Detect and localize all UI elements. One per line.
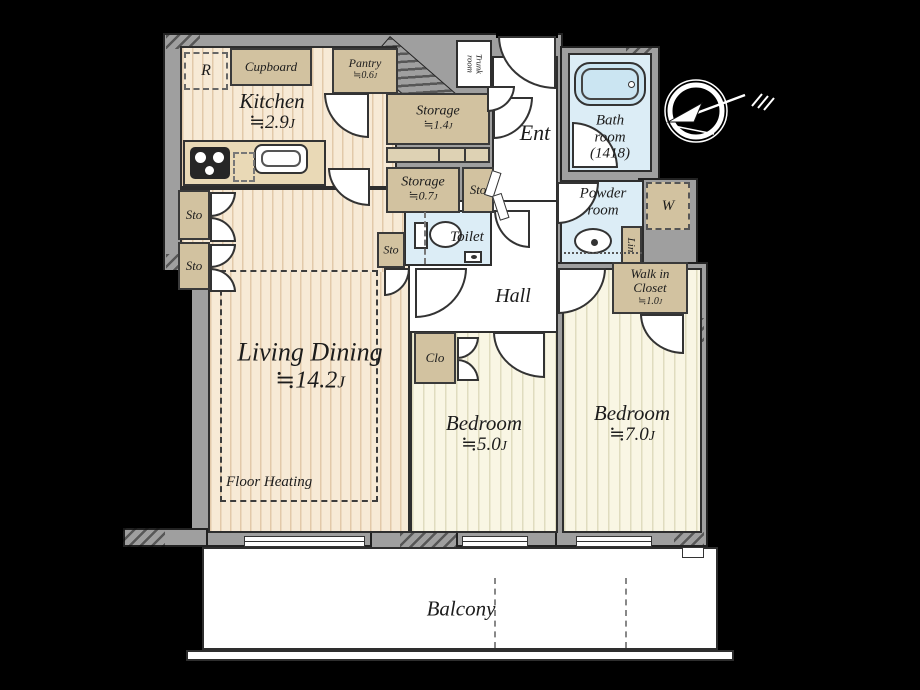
shelf-divider xyxy=(438,149,440,161)
sto-mid-label: Sto xyxy=(470,183,487,197)
pantry-size: ≒0.6J xyxy=(349,70,382,81)
bedroom7-window xyxy=(576,536,652,547)
counter-dashed-module xyxy=(233,152,255,182)
powder-line1: Powder xyxy=(580,186,627,203)
storage07-name: Storage xyxy=(401,175,445,190)
storage07-size-unit: J xyxy=(434,192,438,202)
storage14-label: Storage ≒1.4J xyxy=(416,104,460,133)
bathroom-label: Bath room (1418) xyxy=(590,112,630,162)
powder-room-label: Powder room xyxy=(580,186,627,219)
bedroom5-label: Bedroom ≒5.0J xyxy=(446,412,522,456)
bedroom7-size: ≒7.0J xyxy=(594,425,670,446)
storage14-name: Storage xyxy=(416,104,460,119)
powder-line2: room xyxy=(580,202,627,219)
burner xyxy=(205,166,214,175)
bedroom5-size: ≒5.0J xyxy=(446,435,522,456)
living-window xyxy=(244,536,365,547)
toilet-control xyxy=(464,251,482,263)
kitchen-size-unit: J xyxy=(289,116,295,131)
bath-line2: room xyxy=(590,129,630,146)
walkin-closet-label: Walk in Closet ≒1.0J xyxy=(631,267,670,307)
exterior-notch xyxy=(140,270,192,532)
floor-plan: Kitchen ≒2.9J Living Dining ≒14.2J Bedro… xyxy=(0,0,920,690)
kitchen-size-value: ≒2.9 xyxy=(249,112,289,133)
pantry-label: Pantry ≒0.6J xyxy=(349,57,382,81)
trunk-room-label: Trunk room xyxy=(465,54,484,74)
living-name: Living Dining xyxy=(237,339,382,368)
living-size-value: ≒14.2 xyxy=(275,367,337,393)
bedroom7-size-value: ≒7.0 xyxy=(609,424,649,445)
sto-left2-label: Sto xyxy=(186,259,203,273)
bedroom7-size-unit: J xyxy=(649,428,655,443)
clo-label: Clo xyxy=(426,351,445,365)
sink-basin xyxy=(261,150,301,167)
kitchen-sink-icon xyxy=(254,144,308,174)
kitchen-name: Kitchen xyxy=(239,90,304,113)
bath-line3: (1418) xyxy=(590,145,630,162)
walkin-line2: Closet xyxy=(631,282,670,296)
storage14-size-value: ≒1.4 xyxy=(424,118,449,132)
fridge-label: R xyxy=(201,62,211,80)
storage14-size: ≒1.4J xyxy=(416,119,460,132)
walkin-size-value: ≒1.0 xyxy=(638,296,659,307)
storage07-label: Storage ≒0.7J xyxy=(401,175,445,204)
powder-sink-icon xyxy=(574,228,612,254)
burner xyxy=(195,152,206,163)
storage14-shelf xyxy=(386,147,490,163)
balcony-label: Balcony xyxy=(427,597,496,620)
linen-label: Lin xyxy=(625,238,637,253)
hall-label: Hall xyxy=(495,285,531,307)
compass-north-arrow-icon xyxy=(660,74,780,146)
walkin-size: ≒1.0J xyxy=(631,296,670,307)
balcony-corner-notch xyxy=(682,547,704,558)
toilet-dashed-line xyxy=(424,212,426,264)
bedroom5-size-unit: J xyxy=(501,438,507,453)
bedroom5-name: Bedroom xyxy=(446,412,522,435)
bedroom5-size-value: ≒5.0 xyxy=(461,434,501,455)
balcony-rail xyxy=(186,650,734,661)
bath-line1: Bath xyxy=(590,112,630,129)
control-dot xyxy=(471,255,477,259)
living-size: ≒14.2J xyxy=(237,367,382,393)
bathtub-icon xyxy=(574,62,646,106)
living-size-unit: J xyxy=(337,372,345,391)
storage07-size-value: ≒0.7 xyxy=(409,189,434,203)
tub-drain xyxy=(628,81,635,88)
entrance-label: Ent xyxy=(520,121,551,145)
pantry-size-unit: J xyxy=(374,72,377,80)
bedroom7-label: Bedroom ≒7.0J xyxy=(594,402,670,446)
stove-icon xyxy=(190,147,230,179)
pantry-name: Pantry xyxy=(349,57,382,70)
kitchen-label: Kitchen ≒2.9J xyxy=(239,90,304,134)
walkin-size-unit: J xyxy=(659,298,662,306)
shelf-divider-dashed xyxy=(464,149,466,161)
sink-tap xyxy=(591,239,598,246)
wall-end-left-hatch xyxy=(123,528,165,547)
walkin-line1: Walk in xyxy=(631,267,670,281)
balcony-divider2 xyxy=(625,578,627,648)
floor-heating-label: Floor Heating xyxy=(226,474,312,491)
sto-left1-label: Sto xyxy=(186,208,203,222)
trunk-line2: room xyxy=(465,54,474,74)
toilet-label: Toilet xyxy=(450,229,484,246)
kitchen-size: ≒2.9J xyxy=(239,113,304,134)
storage07-size: ≒0.7J xyxy=(401,190,445,203)
pantry-size-value: ≒0.6 xyxy=(353,70,374,81)
living-label: Living Dining ≒14.2J xyxy=(237,339,382,394)
bedroom5-window xyxy=(462,536,528,547)
washer-label: W xyxy=(662,198,675,215)
storage14-size-unit: J xyxy=(449,121,453,131)
trunk-line1: Trunk xyxy=(474,54,483,74)
bedroom7-name: Bedroom xyxy=(594,402,670,425)
sto-toilet-label: Sto xyxy=(383,243,398,256)
cupboard-label: Cupboard xyxy=(245,60,297,74)
burner xyxy=(213,152,224,163)
